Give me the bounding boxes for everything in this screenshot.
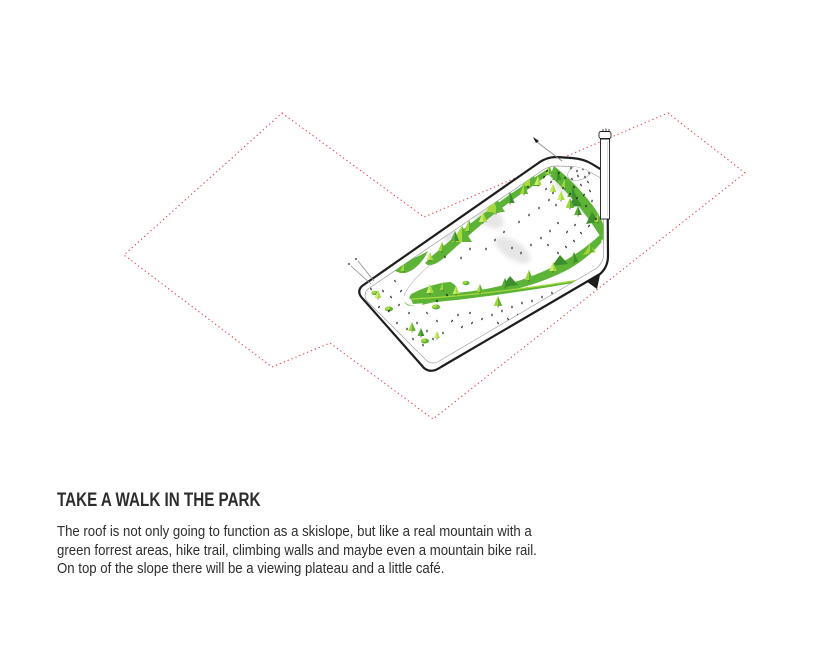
tiny-person-figure xyxy=(567,296,569,299)
page-title: TAKE A WALK IN THE PARK xyxy=(57,491,537,510)
tiny-person-figure xyxy=(473,189,475,192)
tiny-person-figure xyxy=(520,252,521,254)
leader-start-dot xyxy=(348,263,350,265)
page: { "meta": {"width": 815, "height": 668},… xyxy=(0,0,815,668)
tiny-person-figure xyxy=(521,302,522,304)
summit-leader-arrowhead xyxy=(533,137,539,143)
body-text-line: On top of the slope there will be a view… xyxy=(57,560,585,579)
tiny-person-figure xyxy=(371,262,372,264)
tiny-person-figure xyxy=(530,244,531,246)
tiny-person-figure xyxy=(504,182,505,184)
tiny-person-figure xyxy=(511,306,512,308)
leader-start-dot xyxy=(355,258,357,260)
tiny-person-figure xyxy=(481,198,483,201)
tiny-person-figure xyxy=(440,219,442,222)
tiny-person-figure xyxy=(588,172,589,174)
chimney-column xyxy=(601,139,610,219)
tiny-person-figure xyxy=(538,207,539,209)
tiny-person-figure xyxy=(444,256,445,258)
tiny-person-figure xyxy=(487,180,489,183)
tiny-person-figure xyxy=(576,170,577,172)
tiny-person-figure xyxy=(416,322,417,324)
site-plan-illustration xyxy=(0,0,815,470)
tiny-person-figure xyxy=(577,292,579,295)
tiny-person-figure xyxy=(531,300,532,302)
tiny-person-figure xyxy=(575,300,576,302)
tiny-person-figure xyxy=(426,330,427,332)
tiny-person-figure xyxy=(451,209,453,212)
left-leader-line xyxy=(351,266,371,284)
tiny-person-figure xyxy=(495,172,497,175)
body-text-line: green forrest areas, hike trail, climbin… xyxy=(57,542,585,561)
tiny-person-figure xyxy=(570,167,571,169)
tiny-person-figure xyxy=(469,248,470,250)
tiny-person-figure xyxy=(493,190,495,193)
body-text-line: The roof is not only going to function a… xyxy=(57,523,585,542)
tiny-person-figure xyxy=(460,257,461,259)
tiny-person-figure xyxy=(468,207,470,210)
tiny-person-figure xyxy=(565,304,566,307)
tiny-person-figure xyxy=(511,247,512,249)
chimney-cap xyxy=(599,132,611,139)
skislope-roof-diagram xyxy=(0,0,815,470)
tiny-person-figure xyxy=(501,310,502,312)
tiny-person-figure xyxy=(585,290,586,292)
left-leader-line xyxy=(358,261,374,281)
chimney xyxy=(599,129,611,220)
tiny-person-figure xyxy=(462,196,464,199)
tiny-person-figure xyxy=(412,338,413,340)
body-text: The roof is not only going to function a… xyxy=(57,523,585,579)
